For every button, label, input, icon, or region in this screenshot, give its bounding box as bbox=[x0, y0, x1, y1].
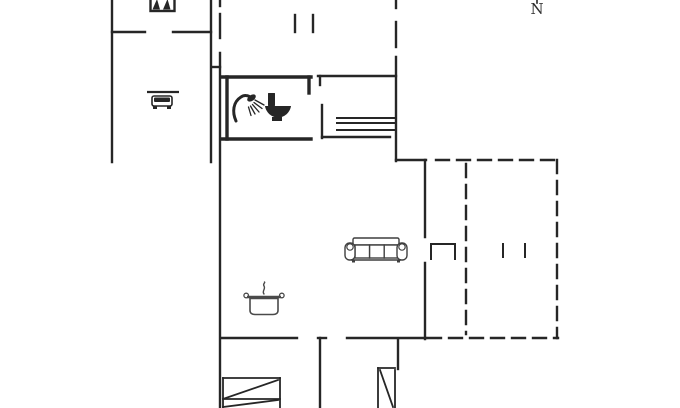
north-indicator: N bbox=[528, 1, 546, 18]
sofa-back bbox=[353, 238, 399, 245]
toilet-tank bbox=[268, 93, 275, 106]
floor-plan-svg bbox=[0, 0, 680, 408]
car-wheel bbox=[167, 106, 171, 110]
sofa-icon bbox=[345, 238, 407, 263]
bed-outline-line bbox=[223, 400, 278, 407]
sofa-cushion bbox=[355, 245, 370, 258]
toilet-icon bbox=[265, 93, 291, 121]
bed-outline-line bbox=[223, 380, 278, 399]
shower-spray-line bbox=[249, 107, 252, 116]
bunk-bed-icon bbox=[151, 0, 175, 11]
sofa-foot bbox=[352, 260, 355, 263]
floor-plan-canvas: N bbox=[0, 0, 680, 408]
car-windshield bbox=[154, 98, 170, 103]
sofa-cushion bbox=[370, 245, 385, 258]
steam-squiggle bbox=[263, 282, 264, 294]
car-icon bbox=[147, 92, 179, 109]
sofa-foot bbox=[397, 260, 400, 263]
toilet-bowl bbox=[265, 106, 291, 118]
shower-icon bbox=[234, 93, 264, 121]
pot-handle bbox=[280, 293, 285, 298]
toilet-base bbox=[272, 117, 282, 121]
pot-body bbox=[250, 299, 278, 315]
bed-outline-line bbox=[380, 370, 393, 407]
pot-handle bbox=[244, 293, 249, 298]
north-label: N bbox=[530, 0, 543, 18]
car-wheel bbox=[153, 106, 157, 110]
cooking-pot-icon bbox=[244, 282, 284, 315]
